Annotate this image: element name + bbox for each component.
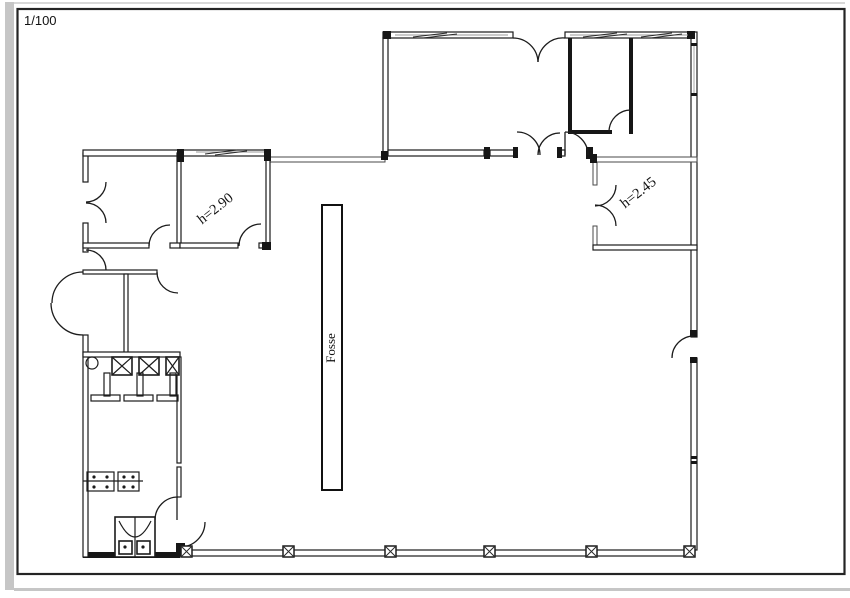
scale-label: 1/100 (24, 13, 57, 28)
wc-stall-x-icon (112, 357, 179, 375)
column-post (385, 546, 396, 557)
column-post (586, 546, 597, 557)
column-post (283, 546, 294, 557)
washbasin-icon (115, 517, 155, 557)
pit-label: Fosse (323, 333, 338, 363)
column-post (484, 546, 495, 557)
floorplan-drawing: 1/100 (0, 0, 850, 598)
floorplan-page: 1/100 (0, 0, 850, 598)
pit-rectangle: Fosse (322, 205, 342, 490)
drawing-frame (18, 9, 845, 574)
column-post (684, 546, 695, 557)
column-post (181, 546, 192, 557)
